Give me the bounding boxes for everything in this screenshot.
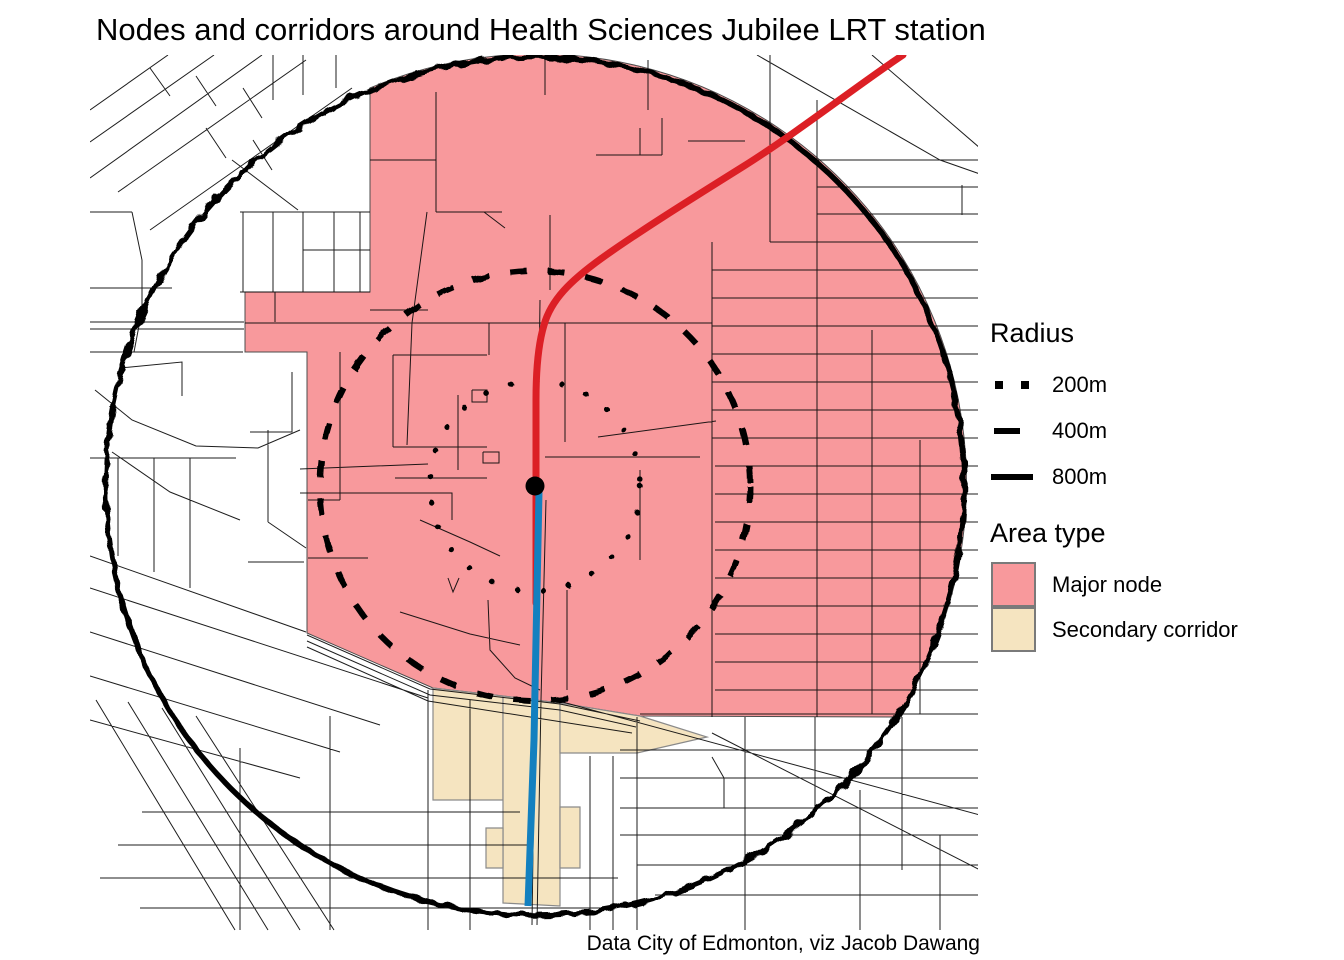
dotted-line-key-icon xyxy=(1021,381,1029,389)
legend-swatch-secondary-corridor xyxy=(991,607,1036,652)
legend-item-800m: 800m xyxy=(1052,464,1107,490)
dotted-line-key-icon xyxy=(995,381,1003,389)
secondary-corridor-area xyxy=(433,688,707,906)
caption: Data City of Edmonton, viz Jacob Dawang xyxy=(587,932,980,956)
major-node-area xyxy=(245,54,966,717)
map-canvas xyxy=(0,0,1344,960)
legend-item-400m: 400m xyxy=(1052,418,1107,444)
legend-area-type-title: Area type xyxy=(990,518,1106,549)
legend-radius-title: Radius xyxy=(990,318,1074,349)
legend-item-200m: 200m xyxy=(1052,372,1107,398)
page-title: Nodes and corridors around Health Scienc… xyxy=(96,12,986,48)
legend-swatch-major-node xyxy=(991,562,1036,607)
page: Nodes and corridors around Health Scienc… xyxy=(0,0,1344,960)
station-dot xyxy=(526,477,545,496)
legend-item-secondary-corridor: Secondary corridor xyxy=(1052,617,1238,643)
legend-item-major-node: Major node xyxy=(1052,572,1162,598)
dashed-line-key-icon xyxy=(994,428,1020,434)
solid-line-key-icon xyxy=(991,474,1033,480)
